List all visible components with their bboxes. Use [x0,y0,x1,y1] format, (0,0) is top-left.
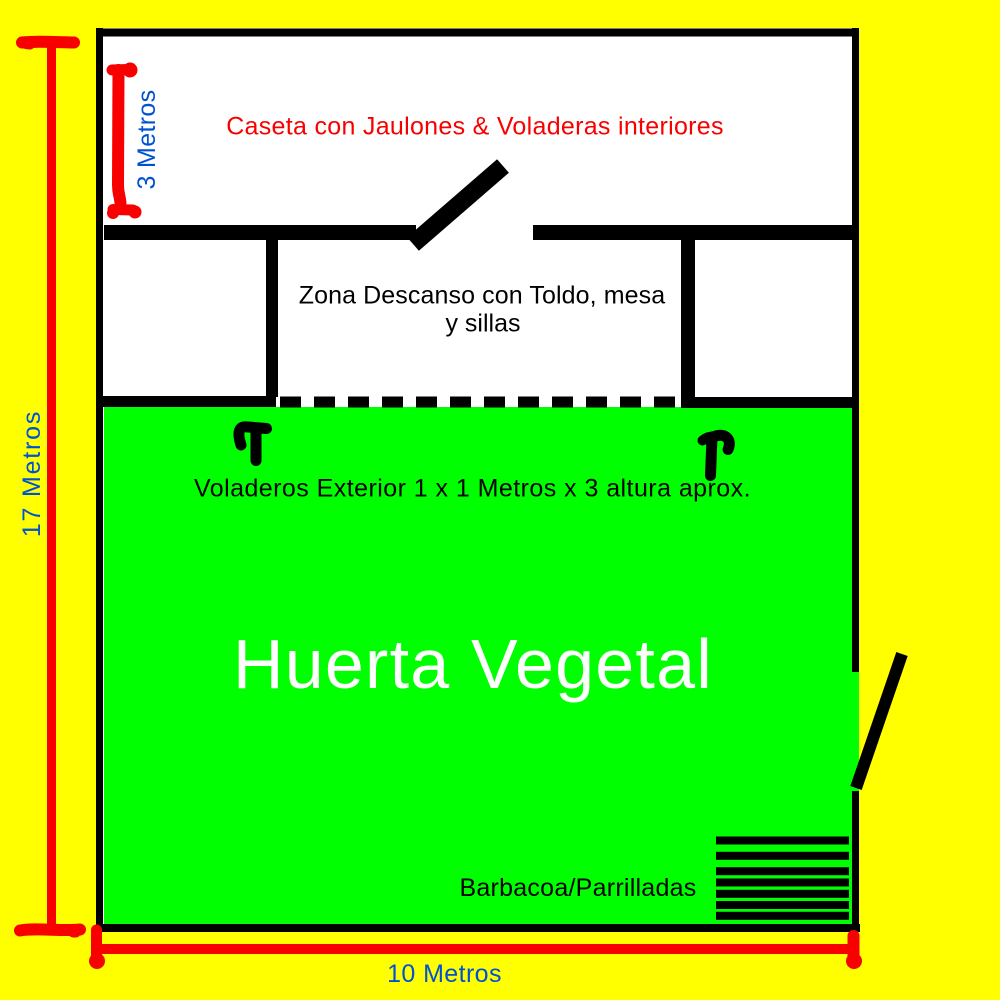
svg-text:Huerta Vegetal: Huerta Vegetal [233,625,713,703]
svg-text:10 Metros: 10 Metros [387,960,502,988]
svg-text:Zona Descanso con Toldo, mesa: Zona Descanso con Toldo, mesa [299,282,666,310]
svg-text:Caseta con Jaulones & Voladera: Caseta con Jaulones & Voladeras interior… [226,113,724,141]
svg-text:Voladeros Exterior 1 x 1 Metro: Voladeros Exterior 1 x 1 Metros x 3 altu… [194,475,751,503]
svg-text:Barbacoa/Parrilladas: Barbacoa/Parrilladas [459,874,696,902]
svg-text:17 Metros: 17 Metros [18,410,46,537]
svg-text:3 Metros: 3 Metros [133,89,161,189]
svg-text:y sillas: y sillas [445,310,520,338]
